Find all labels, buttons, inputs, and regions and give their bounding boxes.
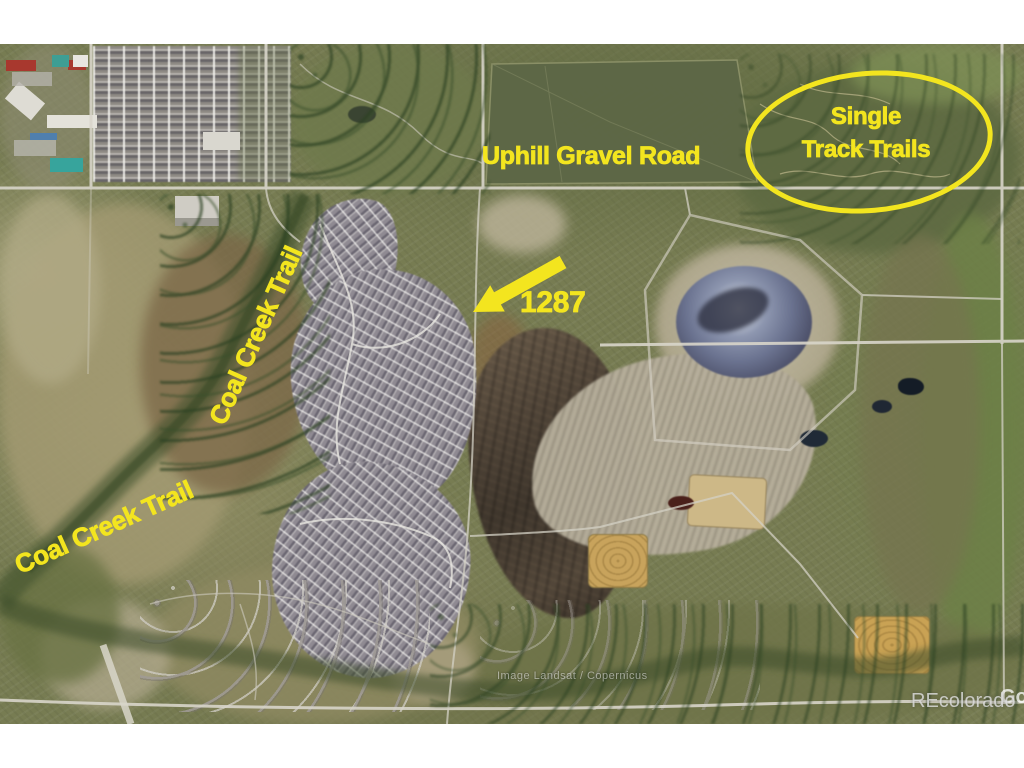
parcel-number-label: 1287 <box>520 286 586 320</box>
arrow-layer <box>0 44 1024 724</box>
aerial-map: Image Landsat / Copernicus Goo REcolorad… <box>0 44 1024 724</box>
